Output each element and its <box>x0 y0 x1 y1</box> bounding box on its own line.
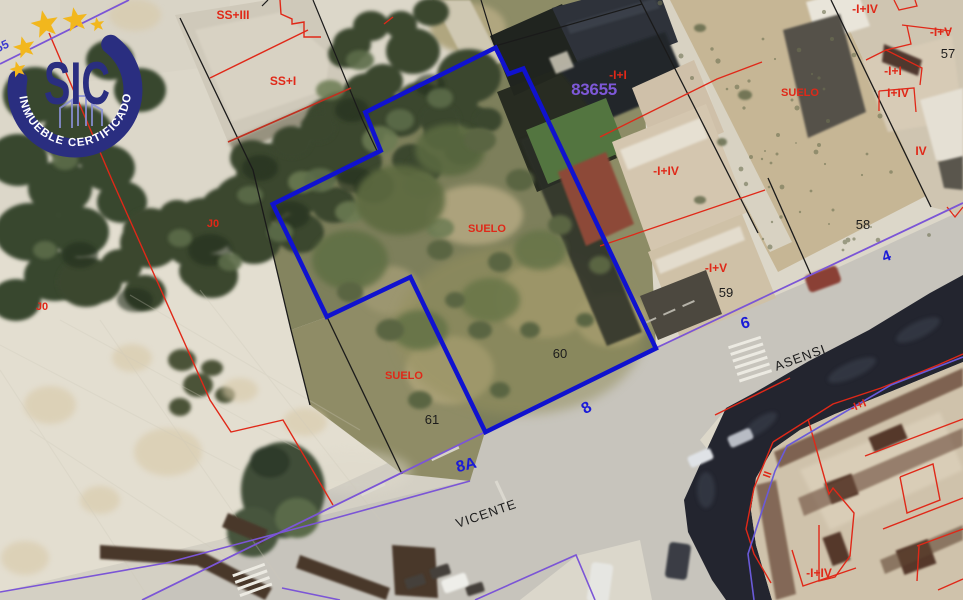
svg-text:-I+I: -I+I <box>884 64 902 78</box>
svg-text:J0: J0 <box>207 218 219 230</box>
svg-text:61: 61 <box>425 412 439 427</box>
svg-text:SUELO: SUELO <box>781 87 819 99</box>
svg-text:-I+IV: -I+IV <box>653 164 679 178</box>
svg-text:59: 59 <box>719 285 733 300</box>
svg-text:-I+V: -I+V <box>930 25 952 39</box>
svg-text:58: 58 <box>856 217 870 232</box>
svg-text:J0: J0 <box>36 301 48 313</box>
svg-text:SUELO: SUELO <box>385 370 423 382</box>
svg-text:SS+I: SS+I <box>270 74 296 88</box>
svg-text:57: 57 <box>941 46 955 61</box>
svg-text:60: 60 <box>553 346 567 361</box>
svg-text:-I+IV: -I+IV <box>852 2 878 16</box>
svg-text:IV: IV <box>915 144 926 158</box>
svg-text:SS+III: SS+III <box>216 8 249 22</box>
svg-text:I+IV: I+IV <box>887 86 909 100</box>
svg-text:-I+IV: -I+IV <box>806 566 832 580</box>
svg-text:-I+V: -I+V <box>705 261 727 275</box>
svg-text:SUELO: SUELO <box>468 223 506 235</box>
svg-text:SIC: SIC <box>44 50 110 117</box>
svg-text:83655: 83655 <box>571 80 617 99</box>
